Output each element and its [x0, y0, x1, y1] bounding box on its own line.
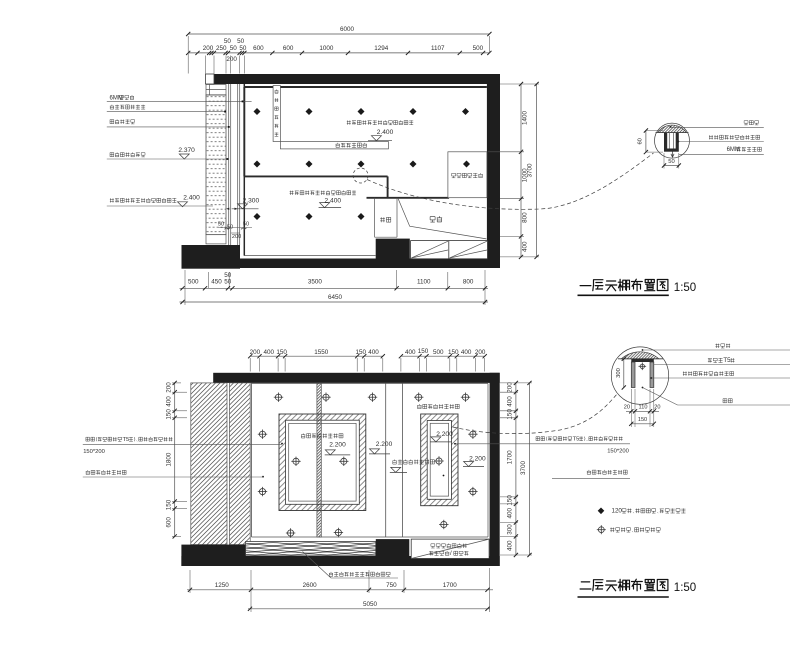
svg-text:3700: 3700	[520, 461, 527, 476]
svg-text:1800: 1800	[165, 452, 172, 467]
svg-text:1107: 1107	[431, 45, 445, 52]
svg-text:150: 150	[448, 349, 459, 356]
svg-text:1:50: 1:50	[674, 282, 696, 294]
svg-text:150: 150	[418, 348, 429, 355]
svg-text:5050: 5050	[363, 601, 378, 608]
svg-text:T5: T5	[123, 437, 130, 443]
svg-text:1294: 1294	[374, 45, 389, 52]
svg-text:1550: 1550	[314, 349, 329, 356]
svg-text:1700: 1700	[443, 582, 458, 589]
svg-text:250: 250	[216, 45, 227, 52]
svg-text:110: 110	[639, 404, 648, 410]
svg-text:150: 150	[165, 499, 172, 510]
svg-text:200: 200	[165, 382, 172, 393]
svg-text:3700: 3700	[526, 163, 533, 178]
svg-text:50: 50	[230, 45, 238, 52]
svg-text:200: 200	[232, 234, 241, 240]
svg-text:50: 50	[224, 279, 232, 286]
svg-text:6000: 6000	[340, 26, 355, 33]
svg-text:150*200: 150*200	[607, 449, 629, 455]
svg-text:750: 750	[386, 582, 397, 589]
svg-text:/: /	[450, 550, 452, 557]
svg-text:2.200: 2.200	[329, 442, 346, 449]
svg-text:2.400: 2.400	[377, 129, 394, 136]
svg-text:1400: 1400	[521, 111, 528, 126]
svg-text:1250: 1250	[215, 582, 230, 589]
svg-text:20: 20	[654, 404, 660, 410]
svg-text:150*200: 150*200	[83, 449, 105, 455]
svg-text:450: 450	[211, 279, 222, 286]
svg-text:200: 200	[475, 349, 486, 356]
svg-text:6MM: 6MM	[110, 95, 123, 101]
svg-text:200: 200	[250, 349, 261, 356]
svg-text:300: 300	[507, 524, 514, 535]
svg-text:60: 60	[637, 138, 643, 144]
svg-text:150: 150	[507, 495, 514, 506]
svg-text:600: 600	[283, 45, 294, 52]
svg-text:800: 800	[463, 279, 474, 286]
svg-text:150: 150	[355, 349, 366, 356]
svg-text:500: 500	[188, 279, 199, 286]
svg-text:500: 500	[433, 349, 444, 356]
svg-text:T5: T5	[573, 437, 580, 443]
svg-text:400: 400	[264, 349, 275, 356]
svg-text:50: 50	[239, 45, 247, 52]
svg-text:1:50: 1:50	[674, 582, 696, 594]
svg-text:400: 400	[368, 349, 379, 356]
svg-text:120: 120	[612, 508, 623, 515]
svg-text:800: 800	[521, 212, 528, 223]
svg-text:400: 400	[521, 241, 528, 252]
svg-text:6450: 6450	[328, 294, 343, 301]
svg-text:400: 400	[165, 396, 172, 407]
svg-text:500: 500	[473, 45, 484, 52]
svg-text:400: 400	[405, 349, 416, 356]
svg-text:150: 150	[165, 409, 172, 420]
svg-text:300: 300	[616, 368, 622, 378]
svg-text:600: 600	[165, 517, 172, 528]
svg-text:1100: 1100	[417, 279, 431, 286]
svg-text:2.200: 2.200	[376, 441, 393, 448]
svg-text:400: 400	[461, 349, 472, 356]
svg-text:400: 400	[507, 396, 514, 407]
svg-text:600: 600	[253, 45, 264, 52]
svg-text:20: 20	[624, 404, 630, 410]
svg-text:150: 150	[638, 417, 647, 423]
svg-text:2.400: 2.400	[183, 194, 200, 201]
svg-text:T5: T5	[723, 357, 731, 364]
svg-text:1000: 1000	[319, 45, 334, 52]
svg-text:200: 200	[203, 45, 214, 52]
svg-text:2.370: 2.370	[178, 147, 195, 154]
svg-text:2600: 2600	[303, 582, 318, 589]
svg-text:200: 200	[226, 56, 237, 63]
svg-text:200: 200	[507, 382, 514, 393]
svg-text:2.400: 2.400	[325, 198, 342, 205]
svg-text:150: 150	[276, 349, 287, 356]
svg-text:1700: 1700	[507, 450, 514, 465]
svg-text:3500: 3500	[308, 279, 323, 286]
svg-text:400: 400	[507, 507, 514, 518]
svg-text:50: 50	[243, 221, 249, 227]
svg-text:150: 150	[507, 409, 514, 420]
svg-text:50: 50	[218, 221, 224, 227]
svg-text:400: 400	[507, 540, 514, 551]
svg-text:50: 50	[668, 159, 674, 165]
